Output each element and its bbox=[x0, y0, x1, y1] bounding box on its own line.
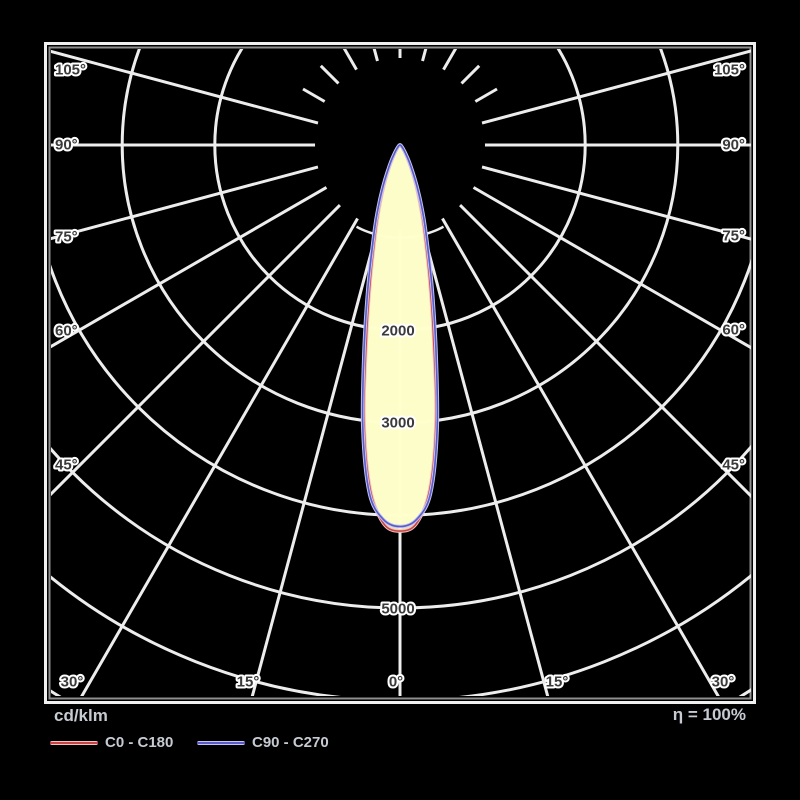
angle-label-left: 60° bbox=[55, 323, 78, 340]
angle-label-right: 45° bbox=[722, 457, 745, 474]
legend-swatch-c90-c270-line bbox=[197, 741, 245, 745]
angle-label-bottom: 15° bbox=[237, 674, 260, 691]
angle-label-right: 90° bbox=[722, 137, 745, 154]
angle-label-left: 105° bbox=[55, 62, 86, 79]
legend-label-c0-c180: C0 - C180 bbox=[105, 734, 173, 751]
efficiency-label: η = 100% bbox=[673, 705, 746, 725]
angle-label-left: 90° bbox=[55, 137, 78, 154]
angle-label-bottom: 30° bbox=[61, 674, 84, 691]
angle-label-bottom: 30° bbox=[712, 674, 735, 691]
legend-label-c90-c270: C90 - C270 bbox=[252, 734, 329, 751]
legend-swatch-c0-c180-line bbox=[50, 741, 98, 745]
ring-value-label: 3000 bbox=[381, 415, 414, 432]
polar-chart: 105°90°75°60°45°105°90°75°60°45°30°15°0°… bbox=[0, 0, 800, 800]
angle-label-right: 60° bbox=[722, 322, 745, 339]
angle-label-right: 75° bbox=[722, 228, 745, 245]
angle-label-left: 75° bbox=[55, 229, 78, 246]
legend-item-c90-c270: C90 - C270 bbox=[197, 734, 329, 751]
angle-label-bottom: 0° bbox=[389, 674, 403, 691]
legend-item-c0-c180: C0 - C180 bbox=[50, 734, 173, 751]
angle-label-right: 105° bbox=[714, 62, 745, 79]
photometric-diagram: 105°90°75°60°45°105°90°75°60°45°30°15°0°… bbox=[0, 0, 800, 800]
ring-value-label: 5000 bbox=[381, 601, 414, 618]
angle-label-bottom: 15° bbox=[546, 674, 569, 691]
unit-label: cd/klm bbox=[54, 706, 108, 726]
ring-value-label: 2000 bbox=[381, 323, 414, 340]
angle-label-left: 45° bbox=[55, 457, 78, 474]
